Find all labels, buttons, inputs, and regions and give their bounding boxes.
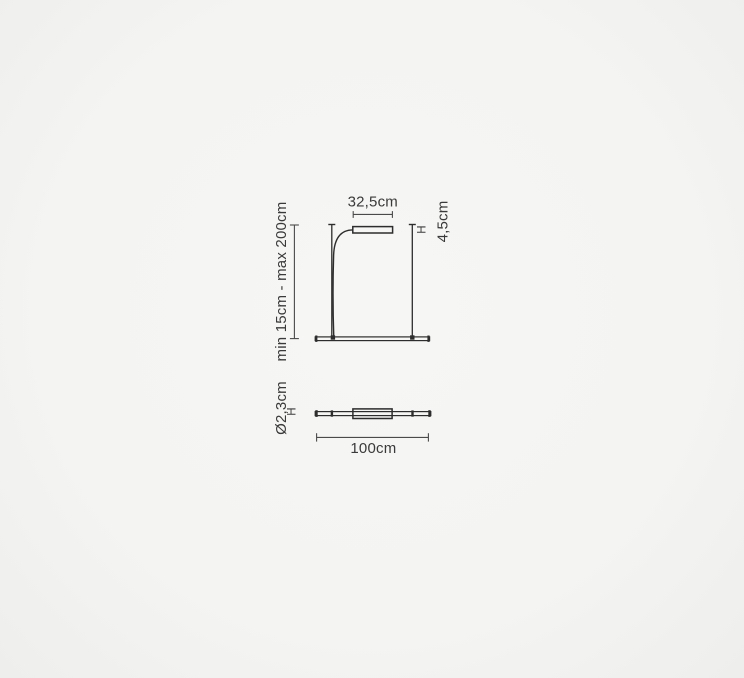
- top-view: Ø2,3cm H 100cm: [273, 381, 431, 457]
- bar-length-dimension: 100cm: [317, 433, 429, 457]
- curved-arm: [333, 230, 353, 338]
- lamp-head: [353, 227, 393, 233]
- suspension-range-label: min 15cm - max 200cm: [273, 202, 290, 362]
- head-top-view: [353, 409, 392, 419]
- bar-top-view: [315, 409, 431, 419]
- right-cable-joint: [410, 335, 414, 339]
- head-height-label: 4,5cm: [435, 201, 452, 243]
- suspension-dimension: min 15cm - max 200cm: [273, 202, 299, 362]
- head-width-label: 32,5cm: [348, 194, 398, 211]
- bar-length-label: 100cm: [350, 440, 396, 457]
- lamp-structure: [315, 225, 429, 342]
- tube-diameter-dimension: Ø2,3cm H: [273, 381, 299, 435]
- front-view: 32,5cm min 15cm - max 200cm: [273, 194, 452, 362]
- lamp-dimension-drawing: 32,5cm min 15cm - max 200cm: [0, 0, 744, 678]
- left-cable-joint: [331, 335, 335, 339]
- head-height-dimension: H 4,5cm: [417, 201, 452, 243]
- head-width-dimension: 32,5cm: [348, 194, 398, 218]
- drawing-canvas: 32,5cm min 15cm - max 200cm: [0, 0, 744, 678]
- tube-diameter-marker: H: [287, 407, 299, 416]
- head-height-marker: H: [417, 225, 429, 234]
